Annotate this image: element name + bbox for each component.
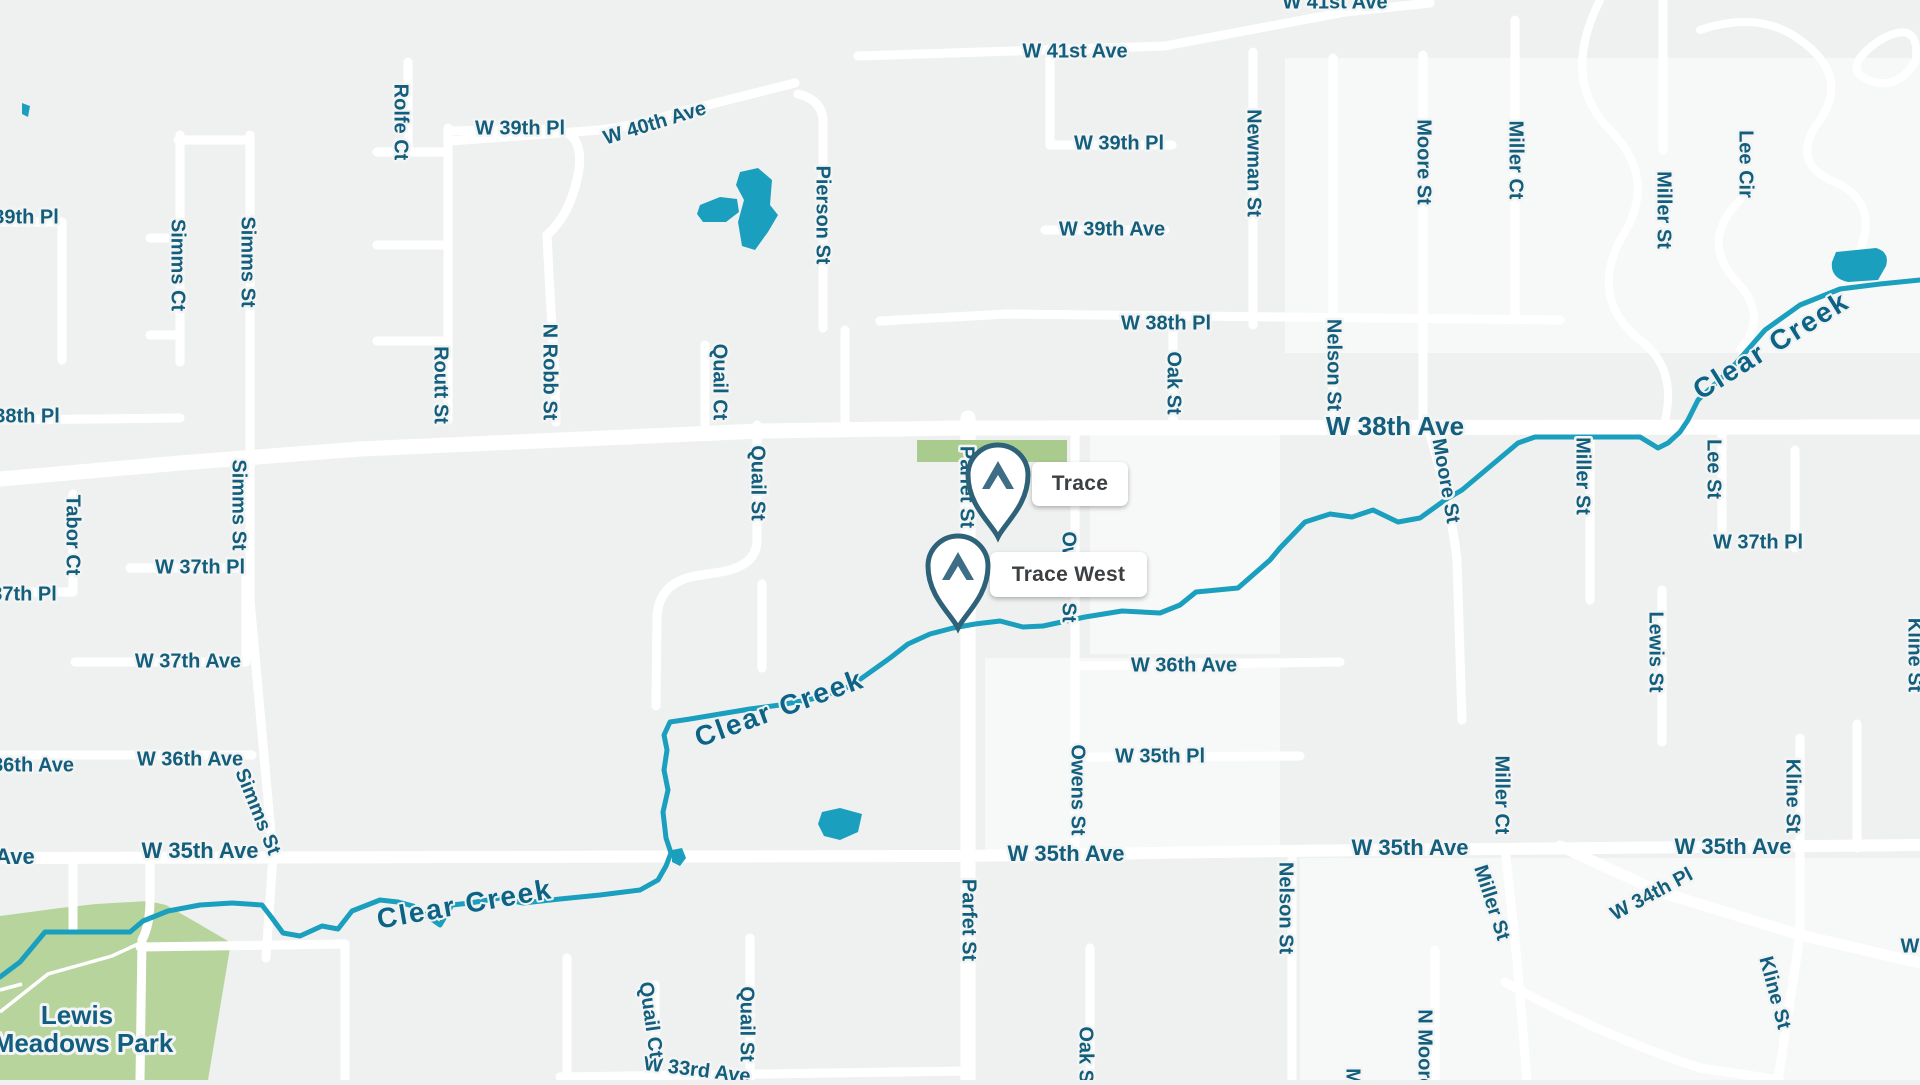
waterway-label: Clear Creek (691, 663, 869, 753)
street-label: Lee St (1703, 439, 1725, 499)
street-label: 37th Pl (0, 583, 57, 605)
pond (818, 808, 862, 840)
street-label: Lewis St (1645, 611, 1667, 692)
street-label: Kline St (1782, 759, 1804, 834)
street-label: W 41st Ave (1282, 0, 1387, 13)
street-label: 39th Pl (0, 206, 59, 228)
street-label: Simms St (237, 216, 259, 307)
pond (1832, 248, 1887, 282)
street-label: Routt St (430, 346, 452, 424)
pin-outline (968, 445, 1028, 537)
street-label: W 38th Ave (1326, 411, 1464, 441)
street-label: Nelson St (1323, 319, 1345, 412)
street-label: W 35th Ave (1675, 834, 1792, 859)
pond (736, 168, 778, 250)
street-label: W 37th Pl (155, 556, 245, 578)
road (798, 94, 823, 122)
street-label: Lee Cir (1735, 130, 1757, 198)
road (140, 944, 345, 947)
street-label: Mc (1342, 1068, 1364, 1080)
street-label: W 39th Ave (1059, 218, 1165, 240)
street-label: Parfet St (958, 879, 980, 962)
street-label: Owens St (1067, 744, 1089, 835)
street-label: W 36th Ave (137, 748, 243, 770)
street-label: W 38th Pl (1121, 312, 1211, 334)
street-label: 38th Pl (0, 405, 60, 427)
pond (22, 103, 30, 117)
street-label: N Robb St (539, 324, 561, 421)
park-label: Lewis (41, 1000, 113, 1030)
street-label: N Moore St (1414, 1009, 1436, 1080)
street-label: Tabor Ct (62, 495, 84, 576)
pin-outline (928, 536, 988, 628)
street-label: W 41st Ave (1022, 40, 1127, 62)
street-label: Moore St (1413, 119, 1435, 205)
street-label: Miller Ct (1505, 121, 1527, 200)
street-label: Quail Ct (634, 980, 667, 1059)
street-label: Quail St (736, 986, 758, 1062)
street-label: Pierson St (812, 166, 834, 265)
road (560, 1071, 968, 1077)
street-label: Nelson St (1275, 862, 1297, 955)
map-pin-trace-west[interactable] (922, 532, 994, 639)
street-label: Quail Ct (709, 344, 731, 421)
street-label: Simms Ct (167, 219, 189, 312)
street-label: Simms St (228, 459, 250, 550)
street-label: W 40th Ave (601, 97, 709, 149)
road (656, 425, 757, 706)
street-label: W 35th Pl (1115, 745, 1205, 767)
pond (697, 197, 739, 222)
city-block (1300, 858, 1920, 1080)
street-label: Kline St (1904, 618, 1920, 693)
road (880, 314, 1560, 321)
street-label: Oak St (1163, 351, 1185, 415)
street-label: Newman St (1243, 109, 1265, 217)
street-label: Moore St (1427, 437, 1464, 525)
street-label: Miller Ct (1491, 756, 1513, 835)
street-label: W 39th Pl (475, 117, 565, 139)
street-label: Miller St (1653, 171, 1675, 249)
marker-label-trace[interactable]: Trace (1032, 462, 1128, 506)
street-label: Oak St (1075, 1026, 1097, 1080)
waterway-label: Clear Creek (374, 873, 554, 934)
street-label: Rolfe Ct (390, 84, 412, 161)
street-label: W 39th Pl (1074, 132, 1164, 154)
street-label: W (1901, 935, 1920, 957)
street-label: Quail St (747, 445, 769, 521)
road (0, 845, 1920, 858)
park-label: Meadows Park (0, 1028, 174, 1058)
street-label: W 35th Ave (142, 838, 259, 863)
street-label: Ave (0, 844, 35, 869)
street-label: W 36th Ave (1131, 654, 1237, 676)
street-label: W 37th Pl (1713, 531, 1803, 553)
marker-label-trace-west[interactable]: Trace West (990, 552, 1147, 597)
street-label: W 37th Ave (135, 650, 241, 672)
street-label: 36th Ave (0, 754, 74, 776)
street-label: W 35th Ave (1352, 835, 1469, 860)
street-label: W 35th Ave (1008, 841, 1125, 866)
street-label: Miller St (1572, 437, 1594, 515)
